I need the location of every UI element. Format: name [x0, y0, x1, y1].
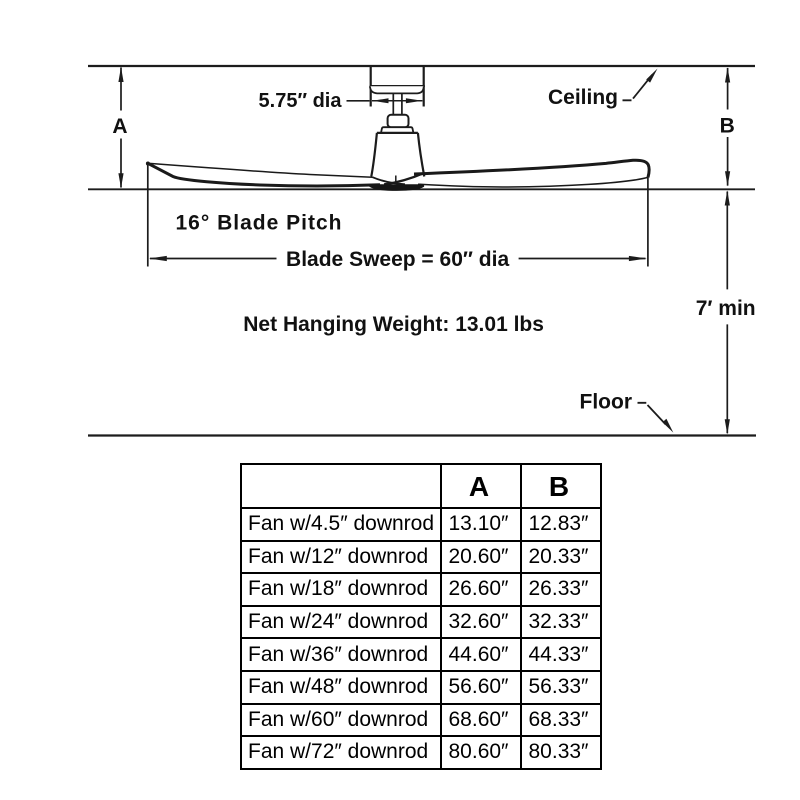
svg-text:Blade Sweep = 60″ dia: Blade Sweep = 60″ dia	[286, 248, 509, 271]
svg-text:B: B	[720, 114, 735, 137]
svg-text:Ceiling: Ceiling	[548, 86, 618, 109]
svg-text:7′ min: 7′ min	[696, 297, 756, 320]
svg-text:16° Blade Pitch: 16° Blade Pitch	[176, 211, 343, 234]
svg-text:A: A	[112, 115, 127, 138]
svg-text:5.75″ dia: 5.75″ dia	[259, 90, 343, 112]
svg-text:Floor: Floor	[580, 390, 633, 413]
svg-text:Net Hanging Weight: 13.01 lbs: Net Hanging Weight: 13.01 lbs	[243, 313, 544, 336]
